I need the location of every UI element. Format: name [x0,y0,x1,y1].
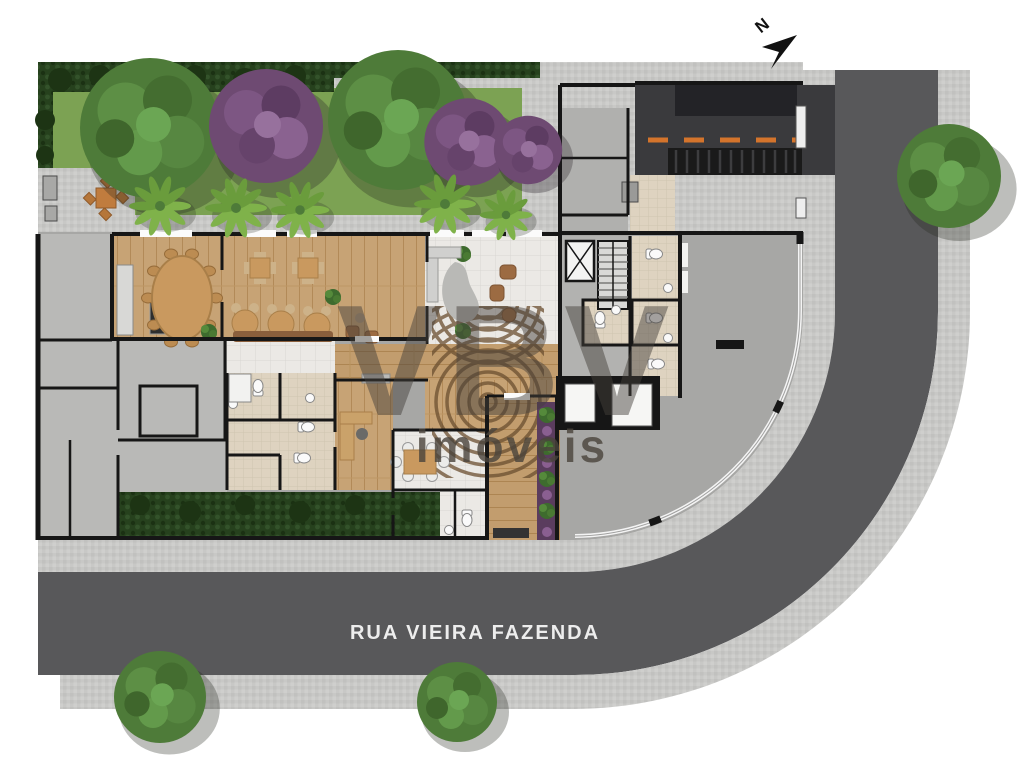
window-sill [682,243,688,267]
utility-box [45,206,57,221]
utility-box [43,176,57,200]
site-plan-svg: RUA VIEIRA FAZENDA [0,0,1024,771]
entrance-mat [493,528,529,538]
floorplan-page: RUA VIEIRA FAZENDA [0,0,1024,771]
storage-room [38,234,112,340]
shower [229,374,251,402]
terrace-wall-stub [716,340,744,349]
north-arrow: N [751,14,797,69]
watermark: VBV imóveis [337,273,674,472]
driveway-block [540,62,835,235]
utility-box [622,182,638,202]
street-name-label: RUA VIEIRA FAZENDA [350,622,600,644]
entrance-canopy [675,84,797,116]
vehicle-gate [796,106,806,148]
kitchen-counter [117,265,133,335]
pedestrian-gate [796,198,806,218]
north-label: N [751,14,772,37]
watermark-subtitle: imóveis [416,420,608,472]
hall-strip [227,340,335,373]
window-sill [682,271,688,293]
